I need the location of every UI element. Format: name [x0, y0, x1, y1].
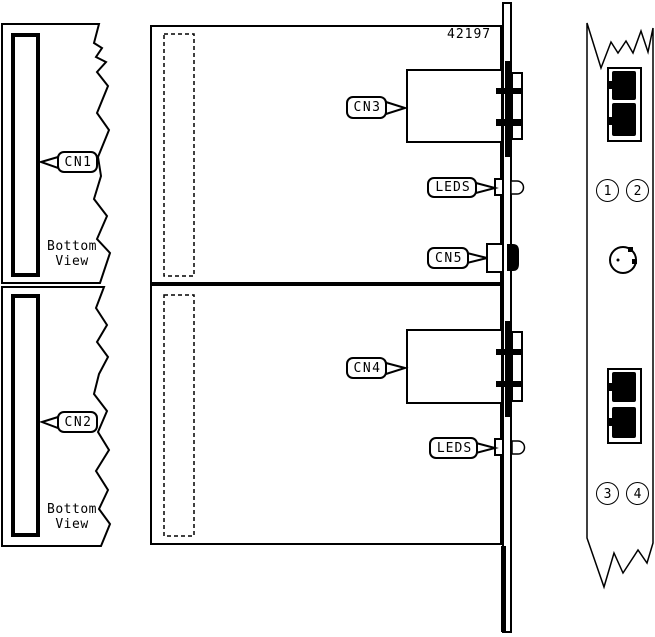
diagram-linework — [0, 0, 655, 637]
led-lens-top — [511, 181, 524, 194]
port-number-1: 1 — [596, 179, 619, 202]
cn4-mount-bar-upper — [496, 349, 523, 355]
callout-leds-bottom: LEDS — [429, 437, 478, 459]
edge-connector-cn1 — [13, 35, 38, 275]
pcb-outline-top — [151, 26, 501, 283]
callout-cn4-label: CN4 — [354, 362, 382, 375]
callout-cn3: CN3 — [346, 96, 387, 119]
port-number-4: 4 — [626, 482, 649, 505]
connector-cn3-nose — [512, 73, 522, 139]
cn3-mount-bar-lower — [496, 119, 523, 126]
faceplate-lower-stripe — [501, 546, 506, 632]
pcb-outline-bottom — [151, 285, 501, 544]
callout-cn2-label: CN2 — [65, 416, 93, 429]
connector-cn5-body — [487, 244, 503, 272]
cn4-mount-bar-lower — [496, 381, 523, 387]
connector-location-diagram: 42197 CN1 CN2 CN3 CN4 CN5 LEDS LEDS Bott… — [0, 0, 655, 637]
cn3-feedthrough-stripe — [505, 61, 512, 157]
connector-cn3-body — [407, 70, 502, 142]
rj45-jack-3 — [612, 372, 636, 402]
rj45-jack-2 — [612, 103, 636, 136]
rj45-jack-4 — [612, 407, 636, 438]
din-key-notch-2 — [632, 259, 637, 264]
rj45-jack-1 — [612, 71, 636, 100]
callout-leds-bottom-label: LEDS — [437, 442, 472, 455]
callout-cn2: CN2 — [57, 411, 98, 433]
callout-cn5-label: CN5 — [435, 252, 463, 265]
port-number-2: 2 — [626, 179, 649, 202]
din-key-notch-1 — [628, 247, 633, 252]
bottom-view-label-bottom: Bottom View — [42, 502, 102, 532]
port-number-3: 3 — [596, 482, 619, 505]
callout-leds-top: LEDS — [427, 177, 477, 198]
jack-1-latch — [608, 81, 613, 89]
din-pin-dot — [617, 259, 620, 262]
jack-4-latch — [608, 418, 613, 426]
part-number: 42197 — [447, 27, 491, 42]
bottom-view-label-top: Bottom View — [42, 239, 102, 269]
jack-3-latch — [608, 383, 613, 391]
connector-cn5-nose — [507, 244, 519, 271]
led-lens-bottom — [512, 441, 525, 454]
connector-cn4-nose — [512, 332, 522, 401]
callout-cn1: CN1 — [57, 151, 98, 173]
cn4-feedthrough-stripe — [505, 321, 512, 417]
connector-cn4-body — [407, 330, 502, 403]
callout-cn4: CN4 — [346, 357, 387, 379]
callout-cn3-label: CN3 — [354, 101, 382, 114]
cn3-mount-bar-upper — [496, 88, 523, 94]
callout-cn1-label: CN1 — [65, 156, 93, 169]
callout-leds-top-label: LEDS — [435, 181, 470, 194]
jack-2-latch — [608, 117, 613, 125]
edge-connector-cn2 — [13, 296, 38, 535]
callout-cn5: CN5 — [427, 247, 469, 269]
